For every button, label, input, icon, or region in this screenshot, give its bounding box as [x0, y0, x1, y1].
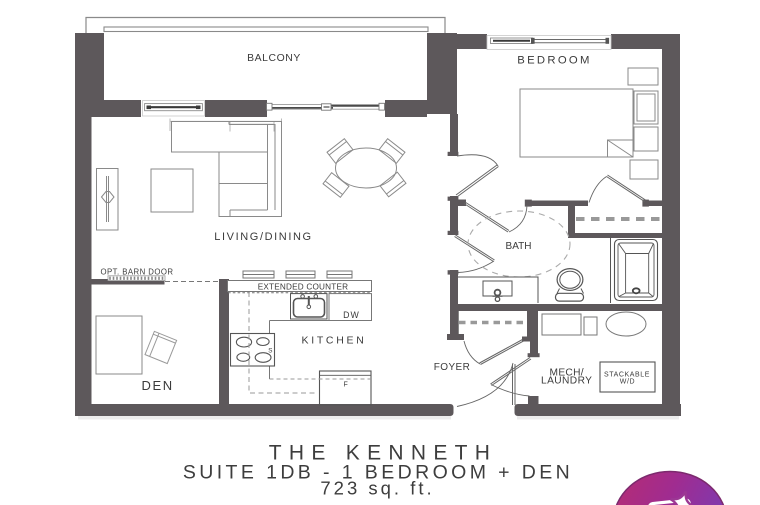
- svg-text:LIVING/DINING: LIVING/DINING: [214, 231, 312, 243]
- svg-text:BATH: BATH: [506, 241, 532, 252]
- svg-text:EXTENDED COUNTER: EXTENDED COUNTER: [258, 283, 349, 292]
- svg-text:F: F: [343, 382, 347, 389]
- svg-text:STACKABLE: STACKABLE: [604, 371, 650, 378]
- svg-text:KITCHEN: KITCHEN: [302, 335, 367, 347]
- svg-text:W/D: W/D: [620, 379, 635, 386]
- svg-text:OPT. BARN DOOR: OPT. BARN DOOR: [100, 267, 173, 276]
- svg-text:BEDROOM: BEDROOM: [517, 55, 591, 67]
- svg-text:LAUNDRY: LAUNDRY: [541, 376, 592, 387]
- svg-text:DW: DW: [343, 310, 360, 320]
- svg-text:FOYER: FOYER: [434, 362, 470, 373]
- svg-text:S: S: [268, 347, 272, 354]
- svg-text:BALCONY: BALCONY: [247, 53, 301, 64]
- svg-text:DEN: DEN: [141, 378, 173, 393]
- svg-text:723 sq. ft.: 723 sq. ft.: [320, 478, 434, 499]
